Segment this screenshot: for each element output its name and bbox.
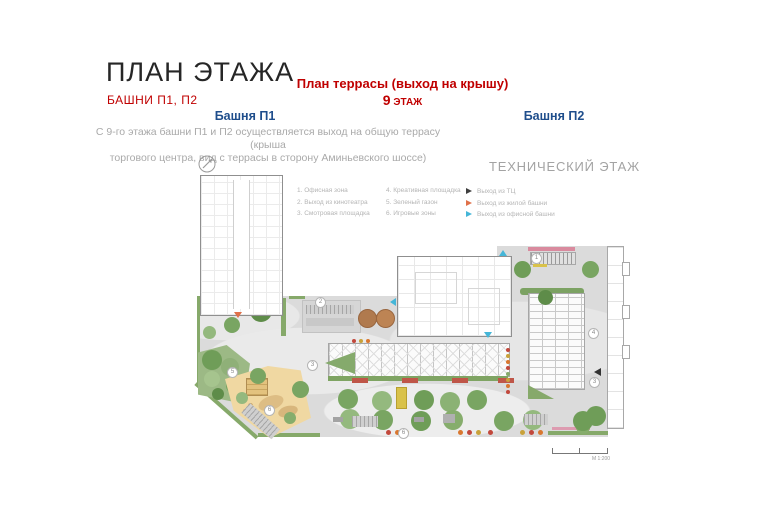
legend-item: 1. Офисная зона xyxy=(297,187,348,194)
tree xyxy=(538,290,553,305)
planter xyxy=(358,309,377,328)
room-outline xyxy=(468,288,500,325)
flower-dots xyxy=(386,430,391,435)
slide-canvas: ПЛАН ЭТАЖА БАШНИ П1, П2 План террасы (вы… xyxy=(0,0,762,523)
scale-bar xyxy=(552,448,608,454)
terrace-structure xyxy=(306,318,354,326)
exit-residential-marker-icon xyxy=(234,312,242,318)
exit-residential-arrow-icon xyxy=(466,200,472,206)
stairs xyxy=(524,414,548,425)
shrub xyxy=(212,388,224,400)
legend-exit-label: Выход из офисной башни xyxy=(477,211,555,218)
floor-heading: 9 ЭТАЖ xyxy=(290,92,515,110)
planter xyxy=(376,309,395,328)
shrub xyxy=(236,392,248,404)
description-line1: С 9-го этажа башни П1 и П2 осуществляетс… xyxy=(78,126,458,152)
tower-p2-label: Башня П2 xyxy=(479,109,629,123)
tree xyxy=(292,381,309,398)
exit-mall-arrow-icon xyxy=(466,188,472,194)
planter-red xyxy=(402,378,418,383)
bench xyxy=(333,417,343,422)
flower-dots xyxy=(352,339,356,343)
description-line2: торгового центра, вид с террасы в сторон… xyxy=(78,152,458,165)
description: С 9-го этажа башни П1 и П2 осуществляетс… xyxy=(78,126,458,165)
legend-exit-label: Выход из жилой башни xyxy=(477,200,547,207)
legend-item: 3. Смотровая площадка xyxy=(297,210,370,217)
zone-marker: 5 xyxy=(227,367,238,378)
exit-office-marker-icon xyxy=(390,298,396,306)
exit-office-marker-icon xyxy=(499,250,507,256)
flower-dots xyxy=(520,430,525,435)
exit-office-marker-icon xyxy=(484,332,492,338)
zone-marker: 4 xyxy=(588,328,599,339)
tree xyxy=(250,368,266,384)
zone-marker: 3 xyxy=(589,377,600,388)
terrace-heading: План террасы (выход на крышу) xyxy=(290,76,515,91)
legend-item: 4. Креативная площадка xyxy=(386,187,461,194)
legend-item: 6. Игровые зоны xyxy=(386,210,436,217)
shrub xyxy=(204,371,220,387)
kiosk xyxy=(396,387,407,409)
scale-tick xyxy=(579,448,580,453)
pergola-right xyxy=(528,293,585,390)
zone-marker: 3 xyxy=(307,360,318,371)
tree-row xyxy=(338,389,358,409)
page-subtitle: БАШНИ П1, П2 xyxy=(107,93,198,107)
page-title: ПЛАН ЭТАЖА xyxy=(106,57,294,88)
tower-p1-label: Башня П1 xyxy=(170,109,320,123)
exit-office-arrow-icon xyxy=(466,211,472,217)
stairs xyxy=(306,305,354,314)
bench xyxy=(414,417,424,422)
tree xyxy=(224,317,240,333)
zone-marker: 6 xyxy=(398,428,409,439)
bench-yellow xyxy=(533,264,547,267)
floor-number: 9 xyxy=(383,92,391,108)
technical-floor-tab xyxy=(622,305,630,319)
technical-floor-tab xyxy=(622,262,630,276)
zone-marker: 2 xyxy=(315,297,326,308)
pergola-long xyxy=(328,343,510,377)
north-arrow-icon xyxy=(196,152,218,174)
tree xyxy=(582,261,599,278)
floor-word: ЭТАЖ xyxy=(391,97,423,108)
bench xyxy=(443,414,455,423)
legend-item: 2. Выход из кинотеатра xyxy=(297,199,368,206)
shrub xyxy=(284,412,296,424)
planter-red xyxy=(352,378,368,383)
shrub xyxy=(202,350,222,370)
technical-floor-tab xyxy=(622,345,630,359)
scale-label: М 1:200 xyxy=(592,456,610,462)
flower-strip xyxy=(528,247,575,251)
flower-dots-column xyxy=(506,348,510,352)
planter-red xyxy=(452,378,468,383)
corridor xyxy=(233,180,250,309)
exit-mall-marker-icon xyxy=(594,368,601,376)
greenery-edge xyxy=(289,296,305,299)
planter-red xyxy=(498,378,514,383)
tree xyxy=(203,326,216,339)
shrub xyxy=(576,420,590,434)
legend-exit-label: Выход из ТЦ xyxy=(477,188,515,195)
legend-item: 5. Зеленый газон xyxy=(386,199,438,206)
zone-marker: 6 xyxy=(264,405,275,416)
zone-marker: 1 xyxy=(531,253,542,264)
tree xyxy=(514,261,531,278)
technical-floor-label: ТЕХНИЧЕСКИЙ ЭТАЖ xyxy=(489,159,640,174)
room-outline xyxy=(415,272,457,304)
flower-dots xyxy=(458,430,463,435)
stairs xyxy=(352,416,378,427)
